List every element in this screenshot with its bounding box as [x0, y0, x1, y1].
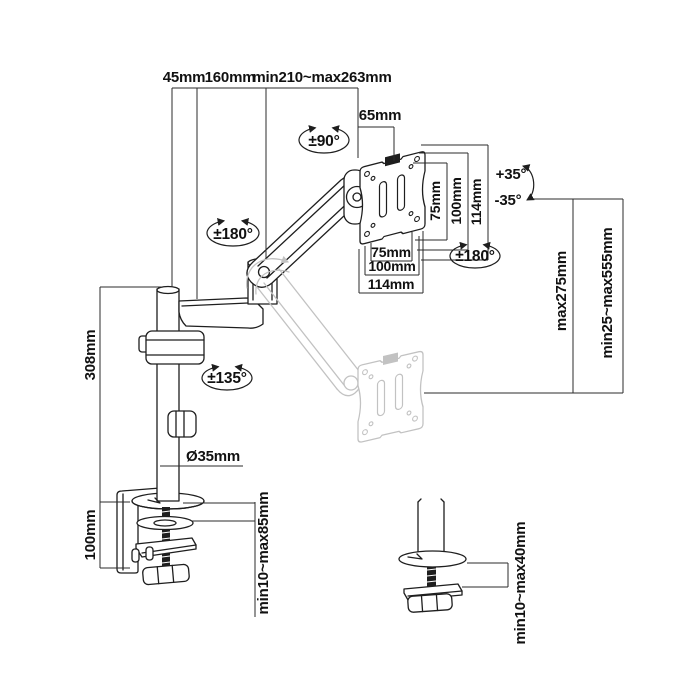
pole	[157, 287, 179, 502]
grommet-top-disc	[399, 551, 466, 567]
dim-label-vertical-travel: max275mm	[553, 251, 570, 331]
tilt-label-down: -35°	[495, 192, 522, 209]
tilt-label-up: +35°	[496, 166, 527, 183]
grommet-knob	[407, 593, 452, 612]
vesa-dim-v75: 75mm	[427, 181, 443, 221]
clamp-hook	[146, 547, 153, 560]
vesa-dim-v114: 114mm	[468, 179, 484, 225]
pole-collar	[139, 331, 204, 364]
dim-label-pole-height: 308mm	[82, 330, 99, 381]
grommet-mount	[399, 499, 466, 613]
diagram-page: 45mm 160mm min210~max263mm 65mm ±90° ±18…	[0, 0, 700, 700]
dim-label-grommet-range: min10~max40mm	[512, 522, 529, 645]
dim-label-lower-arm-reach: 160mm	[205, 69, 256, 86]
dim-label-clamp-height: 100mm	[82, 510, 99, 561]
dim-label-height-range: min25~max555mm	[599, 227, 616, 358]
rotation-label-head-swivel: ±90°	[308, 133, 339, 150]
dim-label-pole-diameter: Ø35mm	[186, 448, 240, 465]
cable-clip	[168, 411, 196, 437]
dim-label-arm-offset: 45mm	[163, 69, 206, 86]
monitor-arm-dimension-diagram: 45mm 160mm min210~max263mm 65mm ±90° ±18…	[0, 0, 700, 700]
ghost-vesa-plate	[358, 347, 423, 443]
dim-label-head-offset: 65mm	[359, 107, 402, 124]
dim-label-clamp-range: min10~max85mm	[255, 492, 272, 615]
vesa-dim-h100: 100mm	[368, 258, 415, 274]
vesa-dim-v100: 100mm	[448, 177, 464, 224]
clamp-hook	[132, 549, 139, 562]
vesa-plate	[360, 147, 425, 245]
rotation-label-vesa: ±180°	[455, 248, 495, 265]
clamp-underside	[132, 507, 196, 585]
dim-label-upper-arm-reach: min210~max263mm	[252, 69, 391, 86]
clamp-knob	[142, 564, 189, 585]
rotation-label-arm: ±180°	[213, 226, 253, 243]
vesa-dim-h114: 114mm	[368, 276, 414, 292]
rotation-label-pole-swivel: ±135°	[207, 370, 247, 387]
